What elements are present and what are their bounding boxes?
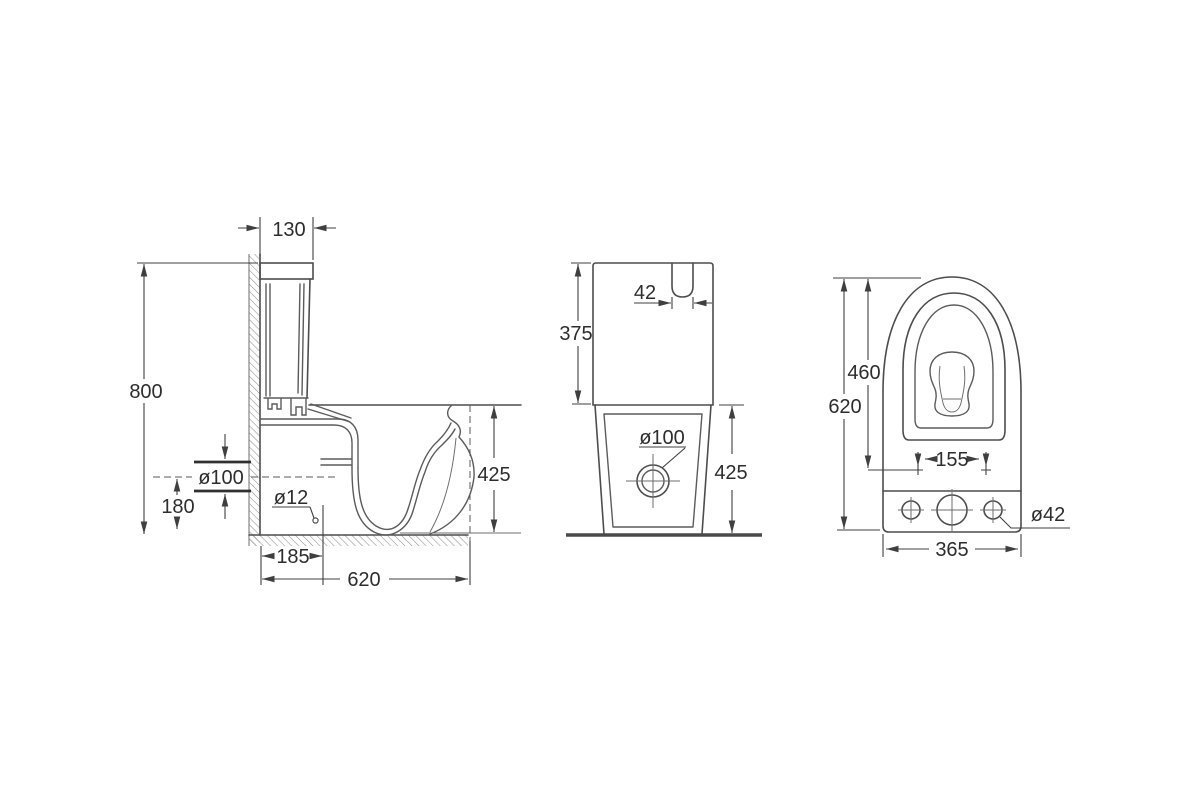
dim-label-425-side: 425 bbox=[477, 464, 510, 486]
dim-label-155: 155 bbox=[935, 449, 968, 471]
dim-button-width: 42 bbox=[634, 282, 712, 309]
flush-button bbox=[672, 263, 693, 297]
label-outlet-front: ø100 bbox=[639, 427, 686, 468]
inlet-valve-notch bbox=[291, 399, 306, 415]
dim-label-42: 42 bbox=[634, 282, 656, 304]
floor-hatch bbox=[249, 535, 468, 546]
dim-rim-height-side: 425 bbox=[400, 406, 521, 533]
front-bowl bbox=[595, 405, 711, 534]
dim-rim-height-front: 425 bbox=[714, 405, 747, 533]
dim-label-620-top: 620 bbox=[828, 396, 861, 418]
toilet-dimension-drawing: 130 800 ø100 180 ø12 bbox=[0, 0, 1200, 800]
tank-lid bbox=[260, 263, 313, 279]
top-view: 460 620 155 ø42 365 bbox=[828, 277, 1070, 561]
seat-rings bbox=[903, 293, 1005, 440]
fixing-hole-dot bbox=[313, 518, 318, 523]
dim-label-620-side: 620 bbox=[347, 569, 380, 591]
dim-label-425-front: 425 bbox=[714, 462, 747, 484]
flush-valve-notch bbox=[268, 399, 281, 409]
dim-label-o100-front: ø100 bbox=[639, 427, 685, 449]
trap-outline bbox=[358, 423, 451, 529]
dim-label-o100: ø100 bbox=[198, 467, 244, 489]
bowl-opening bbox=[930, 352, 974, 416]
dim-seat-length: 460 bbox=[833, 278, 921, 470]
dim-label-180: 180 bbox=[161, 496, 194, 518]
dim-hinge-spacing: 155 bbox=[918, 449, 986, 471]
inlet-holes bbox=[898, 489, 1006, 531]
side-section-view: 130 800 ø100 180 ø12 bbox=[129, 217, 521, 591]
dim-label-185: 185 bbox=[276, 546, 309, 568]
label-fixing-hole: ø12 bbox=[272, 487, 318, 523]
wall-hatch bbox=[249, 254, 260, 546]
dim-tank-depth: 130 bbox=[238, 217, 336, 260]
tank-section bbox=[264, 279, 310, 415]
dim-label-o42: ø42 bbox=[1031, 504, 1065, 526]
dim-tank-height: 375 bbox=[559, 263, 592, 404]
dim-overall-length: 620 bbox=[828, 279, 880, 530]
dim-label-365: 365 bbox=[935, 539, 968, 561]
dim-outlet-height: 180 bbox=[161, 479, 194, 529]
dim-label-130: 130 bbox=[272, 219, 305, 241]
label-inlet-hole: ø42 bbox=[1000, 504, 1070, 528]
dim-overall-width: 365 bbox=[883, 534, 1021, 561]
dim-label-460: 460 bbox=[847, 362, 880, 384]
dim-outlet-diameter: ø100 bbox=[194, 434, 251, 519]
dim-label-375: 375 bbox=[559, 323, 592, 345]
dim-label-800: 800 bbox=[129, 381, 162, 403]
flush-shelf bbox=[321, 459, 352, 465]
dim-overall-height: 800 bbox=[129, 263, 258, 534]
front-view: 375 42 ø100 425 bbox=[559, 263, 762, 535]
dim-label-o12: ø12 bbox=[274, 487, 308, 509]
drawing-canvas: 130 800 ø100 180 ø12 bbox=[0, 0, 1200, 800]
